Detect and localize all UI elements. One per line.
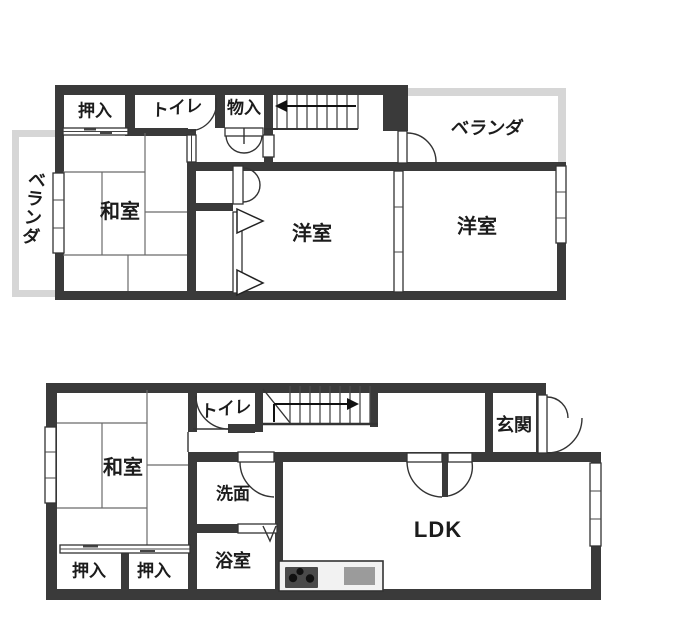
stair-hall-opening bbox=[263, 135, 274, 157]
window-right-2f bbox=[556, 166, 566, 243]
room-label-yoshitsu-center-2f: 洋室 bbox=[292, 224, 332, 244]
room-label-veranda-right-2f: ベランダ bbox=[450, 119, 525, 137]
yoshitsu-divider-sliding-door bbox=[394, 171, 403, 292]
closet-bifold-door bbox=[233, 166, 260, 204]
oshiire-sliding-doors-1f bbox=[60, 545, 190, 553]
room-label-oshiire2-1f: 押入 bbox=[137, 563, 171, 580]
floor-plan-drawing bbox=[0, 0, 673, 626]
room-label-bathroom-1f: 浴室 bbox=[215, 552, 251, 570]
closet-folding-doors bbox=[233, 209, 263, 295]
room-label-senmen-1f: 洗面 bbox=[216, 486, 250, 503]
room-label-ldk-1f: LDK bbox=[414, 519, 462, 541]
monoire-double-door bbox=[225, 128, 263, 153]
stairs-2f bbox=[263, 95, 358, 157]
room-label-washitsu-2f: 和室 bbox=[100, 202, 140, 222]
sink-icon bbox=[344, 567, 375, 585]
veranda-door-2f bbox=[398, 131, 436, 163]
window-ldk-right bbox=[590, 463, 601, 546]
bathroom-folding-door bbox=[238, 524, 277, 541]
room-label-oshiire1-1f: 押入 bbox=[72, 563, 106, 580]
room-label-oshiire-2f: 押入 bbox=[78, 103, 112, 120]
room-label-washitsu-1f: 和室 bbox=[103, 458, 143, 478]
room-label-monoire-2f: 物入 bbox=[227, 100, 261, 117]
oshiire-sliding-door bbox=[63, 128, 128, 135]
window-left-1f bbox=[45, 427, 56, 503]
kitchen-counter-icon bbox=[279, 561, 383, 591]
floor-plan-canvas: 押入 トイレ 物入 ベランダ 和室 洋室 洋室 ベランダ トイレ 玄関 和室 洗… bbox=[0, 0, 673, 626]
ldk-double-door bbox=[407, 453, 472, 497]
washitsu-entry-sliding-door bbox=[187, 135, 196, 162]
genkan-entry-double-door bbox=[538, 395, 582, 453]
room-label-genkan-1f: 玄関 bbox=[496, 416, 532, 434]
window-left-2f bbox=[53, 173, 64, 253]
room-label-yoshitsu-right-2f: 洋室 bbox=[457, 217, 497, 237]
